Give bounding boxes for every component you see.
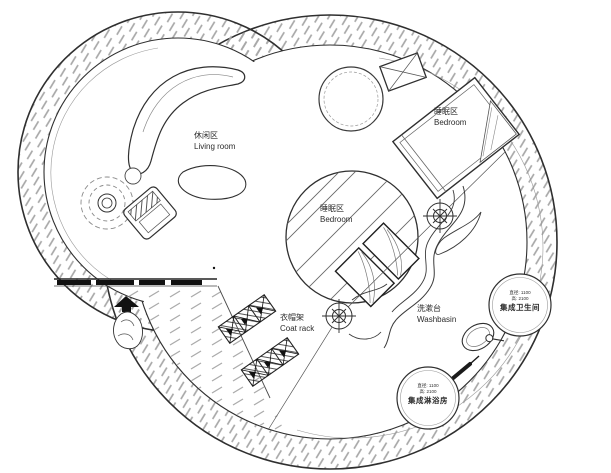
label-washbasin: 洗漱台 Washbasin <box>417 304 456 325</box>
floor-plan-drawing <box>0 0 611 473</box>
bathroom-pod-dim1: 直径: 1100 <box>486 290 554 295</box>
shower-pod-dim1: 直径: 1100 <box>394 383 462 388</box>
statue-base <box>122 307 131 312</box>
glazing-segment <box>171 280 202 285</box>
label-shower-pod: 直径: 1100 高: 2100 集成淋浴房 <box>390 383 466 405</box>
shower-pod-name: 集成淋浴房 <box>390 396 466 405</box>
label-bedroom-center-zh: 睡眠区 <box>320 204 352 215</box>
label-bathroom-pod: 直径: 1100 高: 2100 集成卫生间 <box>482 290 558 312</box>
statue-body <box>114 312 143 349</box>
bathroom-pod-name: 集成卫生间 <box>482 303 558 312</box>
plant-pot-outer <box>98 194 116 212</box>
reference-dot <box>213 267 215 269</box>
shower-pod-dim2: 高: 2100 <box>394 389 462 394</box>
glazing-segment <box>139 280 165 285</box>
label-bedroom-top: 睡眠区 Bedroom <box>434 107 466 128</box>
label-living-room-zh: 休闲区 <box>194 131 235 142</box>
label-washbasin-zh: 洗漱台 <box>417 304 456 315</box>
label-coat-rack: 衣帽架 Coat rack <box>280 313 314 334</box>
organic-rug <box>178 166 246 200</box>
label-bedroom-top-zh: 睡眠区 <box>434 107 466 118</box>
label-coat-rack-zh: 衣帽架 <box>280 313 314 324</box>
label-bedroom-top-en: Bedroom <box>434 118 466 129</box>
label-coat-rack-en: Coat rack <box>280 324 314 335</box>
label-bedroom-center: 睡眠区 Bedroom <box>320 204 352 225</box>
glazing-segment <box>57 280 91 285</box>
side-stool <box>125 168 141 184</box>
label-washbasin-en: Washbasin <box>417 315 456 326</box>
floor-plan-canvas: 休闲区 Living room 睡眠区 Bedroom 睡眠区 Bedroom … <box>0 0 611 473</box>
label-bedroom-center-en: Bedroom <box>320 215 352 226</box>
round-rug-outer <box>319 67 383 131</box>
label-living-room: 休闲区 Living room <box>194 131 235 152</box>
glazing-segment <box>96 280 134 285</box>
bathroom-pod-dim2: 高: 2100 <box>486 296 554 301</box>
label-living-room-en: Living room <box>194 142 235 153</box>
round-rug <box>319 67 383 131</box>
